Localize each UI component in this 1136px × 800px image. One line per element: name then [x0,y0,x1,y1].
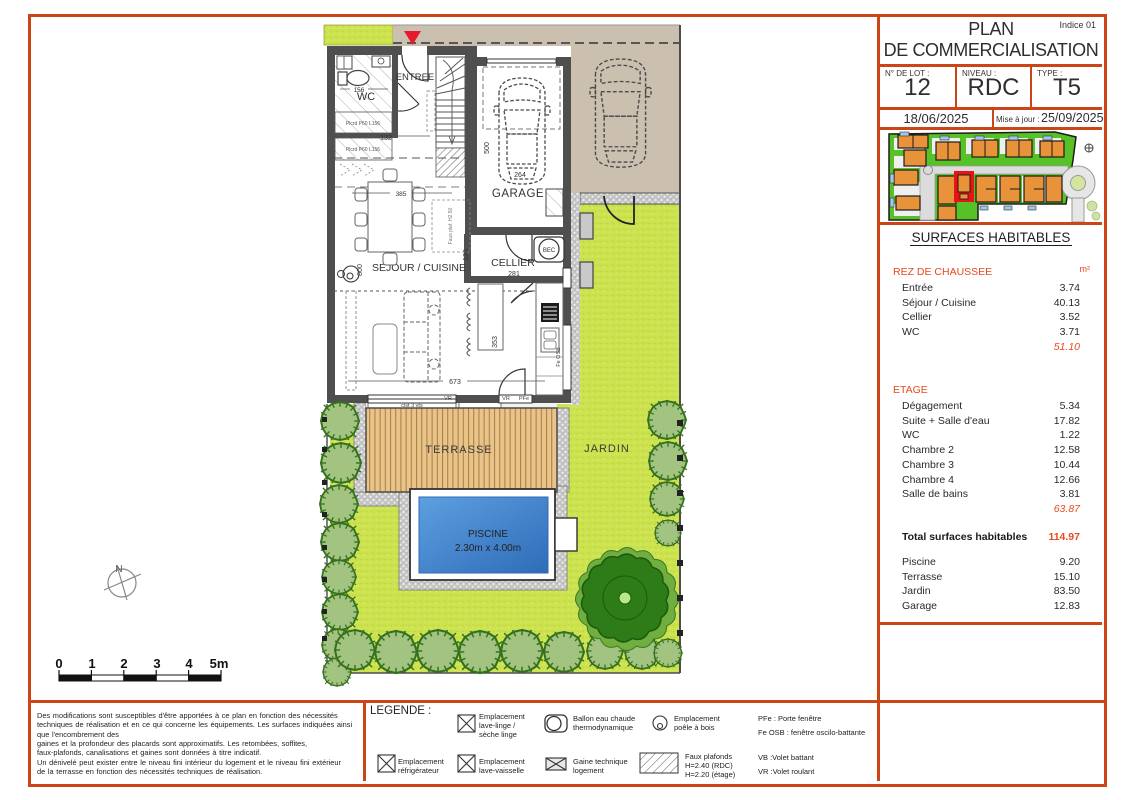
svg-text:PFe: PFe [519,396,529,402]
svg-text:4: 4 [185,656,193,671]
svg-text:673: 673 [449,379,461,386]
svg-text:281: 281 [508,271,520,278]
svg-text:N: N [115,564,122,575]
svg-text:156: 156 [354,87,365,94]
svg-text:132: 132 [380,135,392,142]
svg-text:CELLIER: CELLIER [491,257,535,269]
svg-text:PISCINE: PISCINE [468,529,508,540]
svg-text:clst 3 vts: clst 3 vts [401,403,423,409]
svg-text:1: 1 [88,656,95,671]
svg-text:5m: 5m [210,656,229,671]
svg-text:Plcrd P60 L156: Plcrd P60 L156 [346,121,380,127]
svg-text:2: 2 [120,656,127,671]
svg-text:2.30m x 4.00m: 2.30m x 4.00m [455,543,521,554]
svg-text:BEC: BEC [543,248,556,254]
svg-text:126: 126 [463,249,470,261]
svg-text:385: 385 [396,191,407,198]
svg-text:Fe OSB: Fe OSB [556,347,562,367]
svg-text:800: 800 [357,264,364,276]
svg-text:VR: VR [444,396,452,402]
svg-text:VR: VR [502,396,510,402]
svg-text:Faux plaf. H2.50: Faux plaf. H2.50 [448,207,454,244]
svg-text:264: 264 [514,172,526,179]
svg-text:JARDIN: JARDIN [584,443,630,455]
svg-text:GARAGE: GARAGE [492,188,544,200]
svg-text:353: 353 [492,336,499,348]
svg-text:0: 0 [55,656,62,671]
svg-text:3: 3 [153,656,160,671]
svg-text:500: 500 [484,142,491,154]
svg-text:TERRASSE: TERRASSE [425,444,492,456]
svg-text:Plcrd P60 L156: Plcrd P60 L156 [346,147,380,153]
